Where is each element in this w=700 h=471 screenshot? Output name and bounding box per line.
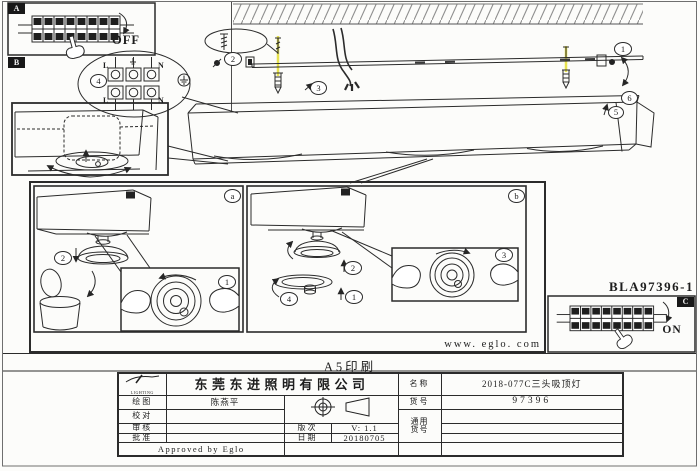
approve-label-cell: 批准 <box>118 433 166 443</box>
generic-item-row3 <box>441 433 623 443</box>
step-1-callout: 1 <box>614 42 632 56</box>
screw-magnifier <box>205 29 278 53</box>
detail-panels-box <box>30 182 545 352</box>
ceiling-hatch <box>233 4 643 24</box>
item-label-cell: 货号 <box>398 395 441 409</box>
version-label-cell: 版次 <box>284 423 331 433</box>
section-c-label: C <box>677 297 694 307</box>
approve-value-cell <box>166 433 284 443</box>
check-value-cell <box>166 409 284 423</box>
date-label-cell: 日期 <box>284 433 331 443</box>
shade-rotation-box <box>12 103 228 177</box>
draw-label-cell: 绘图 <box>118 395 166 409</box>
panel-b-step-1-callout: 1 <box>345 290 363 304</box>
review-label-cell: 审核 <box>118 423 166 433</box>
section-a-label: A <box>8 3 25 14</box>
mounting-bar-assembly <box>205 28 643 115</box>
projection-symbol-cell <box>284 395 398 423</box>
generic-item-row1 <box>441 409 623 423</box>
panel-b-step-4-callout: 4 <box>280 292 298 306</box>
off-state-text: OFF <box>104 33 148 48</box>
terminal-l-top-label: L <box>103 61 108 70</box>
lamp-bar-fixture <box>188 96 654 184</box>
panel-a-step-1-callout: 1 <box>218 275 236 289</box>
draw-value-cell: 陈燕平 <box>166 395 284 409</box>
panel-b-step-3-callout: 3 <box>495 248 513 262</box>
item-number-cell: 97396 <box>441 395 623 409</box>
model-code: BLA97396-1 <box>558 279 694 295</box>
company-logo-subtext: LIGHTING <box>119 391 166 395</box>
panel-b-step-2-callout: 2 <box>344 261 362 275</box>
projection-symbol-icon <box>291 396 391 418</box>
rotate-on-arrow-icon <box>663 302 669 321</box>
step-5-callout: 5 <box>608 106 624 119</box>
right-hand-icon <box>210 288 239 312</box>
rotate-bracket-arrow-icon <box>622 58 628 85</box>
step-4-callout: 4 <box>90 74 107 88</box>
generic-item-label-cell: 通用 货号 <box>398 409 441 443</box>
title-block: LIGHTING 东莞东进照明有限公司 名称 2018-077C三头吸顶灯 绘图… <box>117 372 624 457</box>
manual-page: A B C OFF ON L N L N 4 2 3 1 6 5 a 2 1 b… <box>0 0 700 471</box>
empty-cell <box>284 443 398 456</box>
review-value-cell <box>166 423 284 433</box>
terminal-n-top-label: N <box>158 61 164 70</box>
company-logo-icon <box>122 374 162 386</box>
panel-b-art <box>251 187 518 301</box>
on-state-text: ON <box>654 324 690 336</box>
screw-legend-icon <box>213 59 221 67</box>
website-url: www. eglo. com <box>403 339 541 350</box>
step-2-callout: 2 <box>224 52 242 66</box>
left-hand-icon <box>121 291 150 314</box>
left-hand-icon <box>392 266 420 289</box>
empty-cell <box>398 443 441 456</box>
product-name-cell: 2018-077C三头吸顶灯 <box>441 373 623 395</box>
panel-a-label: a <box>224 189 241 203</box>
section-b-label: B <box>8 57 25 68</box>
terminal-l-bottom-label: L <box>103 96 108 105</box>
panel-b-label: b <box>508 189 525 203</box>
panel-a-step-2-callout: 2 <box>54 251 72 265</box>
approved-note-cell: Approved by Eglo <box>118 443 284 456</box>
check-label-cell: 校对 <box>118 409 166 423</box>
step-6-callout: 6 <box>621 91 638 105</box>
company-logo-cell: LIGHTING <box>118 373 166 395</box>
name-label-cell: 名称 <box>398 373 441 395</box>
generic-label-line2: 货号 <box>411 425 429 434</box>
supply-wires <box>333 28 359 91</box>
terminal-n-bottom-label: N <box>158 96 164 105</box>
ground-symbol-icon <box>178 74 190 86</box>
date-value-cell: 20180705 <box>331 433 398 443</box>
company-name: 东莞东进照明有限公司 <box>166 373 398 395</box>
generic-item-row2 <box>441 423 623 433</box>
version-value-cell: V: 1.1 <box>331 423 398 433</box>
right-hand-icon <box>491 264 518 285</box>
step-3-callout: 3 <box>310 81 327 95</box>
empty-cell <box>441 443 623 456</box>
glass-shade-sketch <box>38 267 95 330</box>
end-screw <box>609 59 615 65</box>
